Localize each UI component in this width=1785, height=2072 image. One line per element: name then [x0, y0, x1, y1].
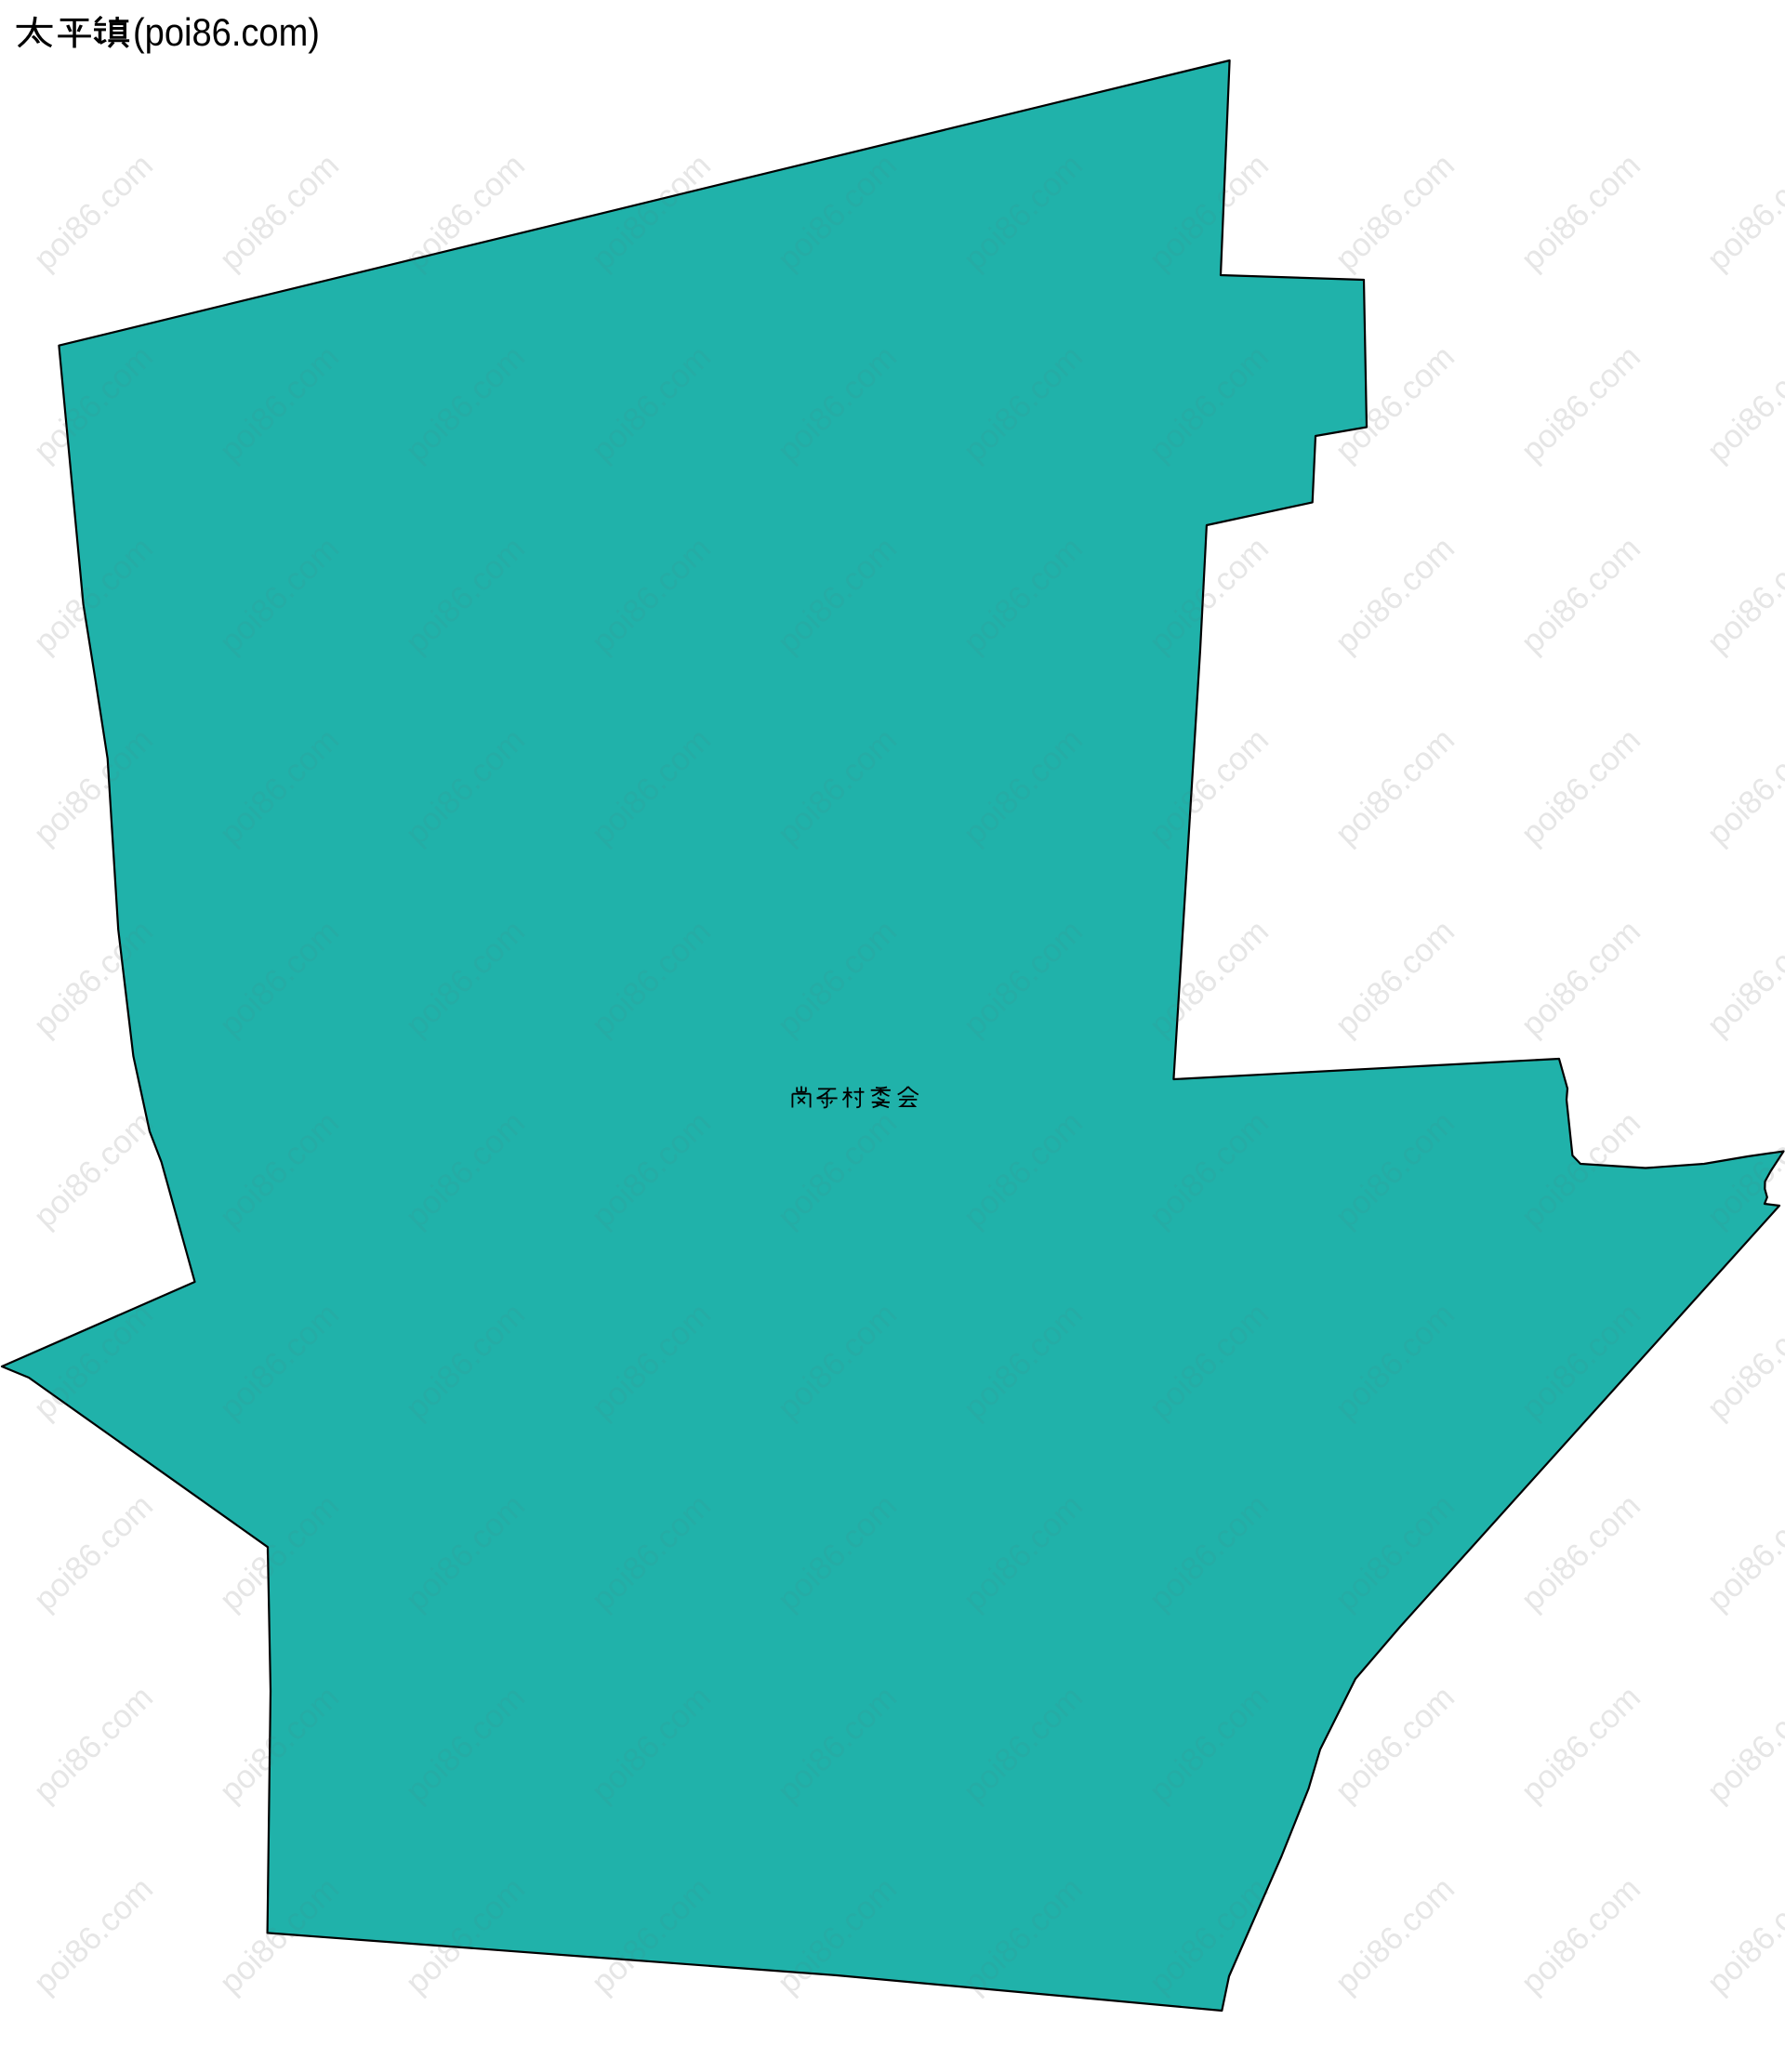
svg-text:(poi86.com): (poi86.com): [133, 10, 320, 54]
